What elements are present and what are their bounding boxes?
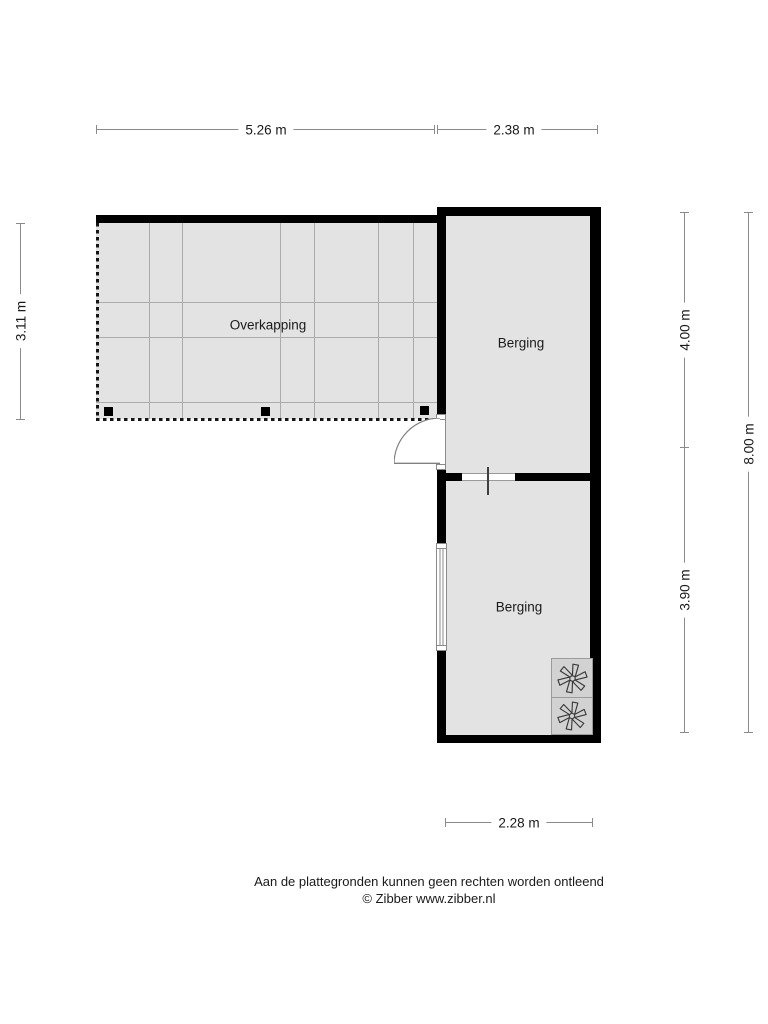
dimension-tick — [96, 125, 97, 134]
dimension-label: 8.00 m — [742, 416, 757, 471]
overkapping-dashed-edge-left — [96, 223, 99, 421]
window-jamb — [436, 645, 447, 651]
floor-grid-line — [149, 223, 150, 419]
dimension-tick — [680, 732, 689, 733]
post-marker — [104, 407, 113, 416]
dimension-tick — [592, 818, 593, 827]
door-swing-arc — [394, 418, 440, 464]
dimension-tick — [680, 212, 689, 213]
interior-opening-tick — [487, 467, 489, 495]
overkapping-top-wall — [96, 215, 446, 223]
floor-grid-line — [413, 223, 414, 419]
post-marker — [420, 406, 429, 415]
floor-grid-line — [96, 402, 438, 403]
dimension-tick — [437, 125, 438, 134]
overkapping-dashed-edge-bottom — [96, 418, 438, 421]
fan-icon — [556, 700, 588, 732]
ventilation-unit — [551, 697, 593, 735]
dimension-label: 3.11 m — [14, 294, 29, 348]
dimension-tick — [744, 212, 753, 213]
floor-grid-line — [96, 337, 438, 338]
dimension-line — [748, 212, 749, 733]
footer: Aan de plattegronden kunnen geen rechten… — [90, 873, 768, 907]
dimension-label: 2.28 m — [491, 816, 546, 831]
footer-copyright: © Zibber www.zibber.nl — [90, 890, 768, 907]
dimension-tick — [445, 818, 446, 827]
window-jamb — [436, 543, 447, 549]
floor-grid-line — [96, 302, 438, 303]
fan-icon — [556, 662, 589, 695]
dimension-label: 5.26 m — [238, 123, 293, 138]
floor-grid-line — [314, 223, 315, 419]
room-label-berging-bottom: Berging — [496, 600, 543, 615]
post-marker — [261, 407, 270, 416]
footer-disclaimer: Aan de plattegronden kunnen geen rechten… — [90, 873, 768, 890]
dimension-label: 3.90 m — [678, 562, 693, 617]
floor-grid-line — [378, 223, 379, 419]
dimension-tick — [744, 732, 753, 733]
floor-grid-line — [182, 223, 183, 419]
ventilation-unit — [551, 658, 593, 698]
room-label-overkapping: Overkapping — [230, 318, 307, 333]
dimension-tick — [16, 223, 25, 224]
dimension-tick — [597, 125, 598, 134]
dimension-tick — [16, 419, 25, 420]
floorplan-canvas: 5.26 m 2.38 m 3.11 m 4.00 m 3.90 m 8.00 … — [0, 0, 768, 1024]
dimension-label: 4.00 m — [678, 302, 693, 357]
room-label-berging-top: Berging — [498, 336, 545, 351]
door-jamb — [436, 464, 446, 470]
window — [436, 546, 447, 648]
dimension-label: 2.38 m — [486, 123, 541, 138]
dimension-tick — [434, 125, 435, 134]
